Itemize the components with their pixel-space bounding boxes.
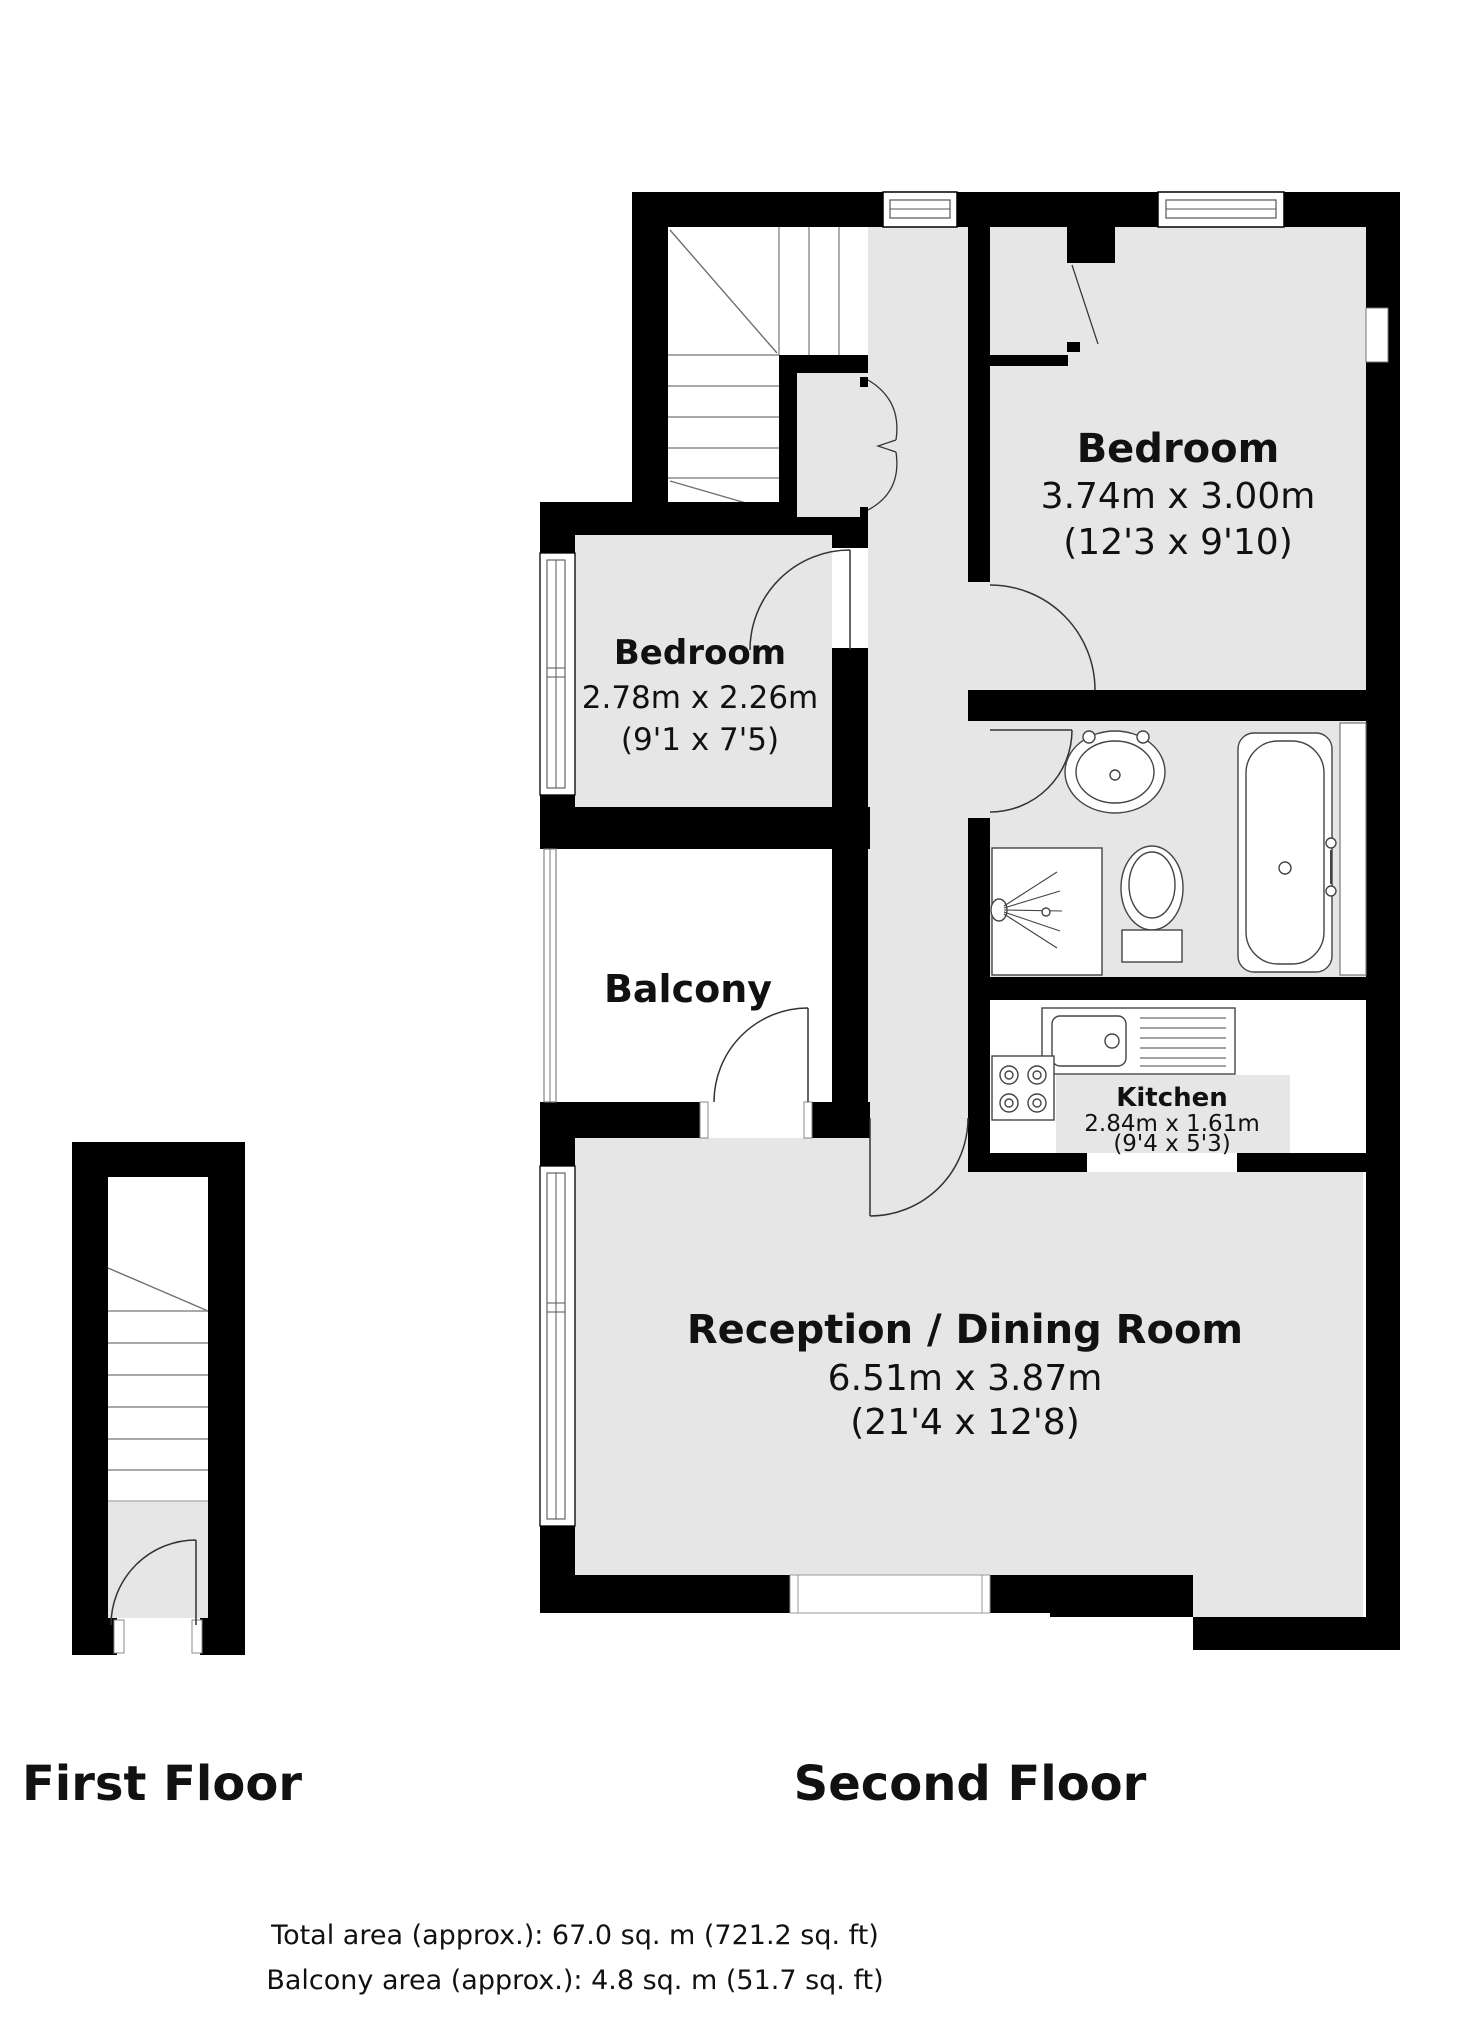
wall-recess [1366,308,1388,362]
first-floor-plan [72,1142,245,1655]
toilet-icon [1121,846,1183,962]
door-jamb [804,1102,812,1138]
reception-label: Reception / Dining Room [687,1307,1243,1353]
bedroom-second-imperial: (9'1 x 7'5) [621,722,779,758]
floor-plan: Bedroom 3.74m x 3.00m (12'3 x 9'10) Bedr… [0,0,1463,2025]
first-floor-caption: First Floor [22,1756,302,1812]
first-floor-landing-floor [108,1501,208,1618]
balcony-area-text: Balcony area (approx.): 4.8 sq. m (51.7 … [266,1965,883,1996]
reception-metric: 6.51m x 3.87m [828,1358,1103,1399]
kitchen-label: Kitchen [1116,1083,1228,1113]
balcony-label: Balcony [604,967,772,1011]
sink-icon [1065,731,1165,813]
kitchen-sink-icon [1042,1008,1235,1074]
hallway-floor [868,227,968,1118]
landing-floor [797,373,868,535]
bathtub-icon [1238,733,1336,972]
window-icon [540,1166,575,1526]
window-icon [883,192,957,227]
bedroom-second-label: Bedroom [614,633,786,673]
bedroom-main-imperial: (12'3 x 9'10) [1063,522,1293,563]
door-jamb [114,1620,124,1653]
total-area-text: Total area (approx.): 67.0 sq. m (721.2 … [270,1920,879,1951]
patio-opening [790,1575,990,1613]
door-jamb [700,1102,708,1138]
reception-imperial: (21'4 x 12'8) [850,1402,1080,1443]
shower-icon [991,848,1102,975]
door-jamb [192,1620,202,1653]
captions: First Floor Second Floor Total area (app… [22,1756,1147,1996]
window-icon [1158,192,1284,227]
second-floor-plan: Bedroom 3.74m x 3.00m (12'3 x 9'10) Bedr… [540,192,1400,1650]
kitchen-imperial: (9'4 x 5'3) [1113,1131,1230,1157]
first-floor-stairs-floor [108,1177,208,1501]
floorplan-page: Bedroom 3.74m x 3.00m (12'3 x 9'10) Bedr… [0,0,1463,2025]
hob-icon [992,1056,1054,1120]
bathroom-window-icon [1340,723,1366,975]
balcony-railing-icon [544,849,556,1102]
bedroom-second-metric: 2.78m x 2.26m [582,680,819,716]
second-floor-caption: Second Floor [794,1756,1147,1812]
bedroom-main-label: Bedroom [1077,426,1280,472]
bedroom-main-metric: 3.74m x 3.00m [1041,476,1316,517]
window-icon [540,553,575,795]
